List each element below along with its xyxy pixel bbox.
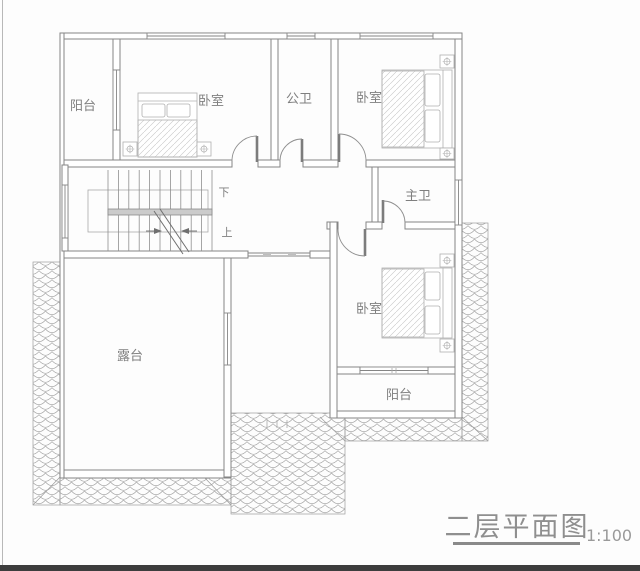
wall-mid	[303, 160, 338, 167]
door-bedroom1	[232, 136, 257, 162]
sliding-door-hall-terrace	[248, 253, 310, 256]
wall-mid	[366, 160, 462, 167]
window-top-bedroom2	[360, 33, 433, 39]
wall-balcony-divider	[113, 39, 120, 70]
window-top-publicbath	[287, 33, 315, 39]
door-bedroom3	[338, 229, 365, 256]
wall-bedroom3-bottom	[428, 367, 455, 374]
window-balcony1-bedroom1	[113, 70, 120, 130]
tile-band-left	[33, 262, 60, 505]
wall-hall-bottom	[62, 251, 248, 258]
wall-mid	[258, 160, 280, 167]
wall-mid	[60, 160, 232, 167]
wall-right	[455, 39, 462, 418]
wall-masterbath-left	[372, 167, 378, 222]
window-terrace-right	[224, 313, 231, 365]
wall-bedroom1-bath	[271, 39, 278, 160]
room-label-public-bath: 公卫	[286, 92, 312, 107]
tile-band-right	[462, 223, 488, 441]
stair-down-label: 下	[219, 186, 230, 199]
wall-bath-bedroom2	[331, 39, 338, 160]
stair-direction-arrows	[146, 228, 197, 234]
bed-bedroom2	[382, 55, 454, 159]
floor-plan-drawing: 下 上	[0, 0, 640, 571]
room-label-bedroom-top-left: 卧室	[198, 93, 224, 109]
wall-terrace-right	[224, 258, 231, 477]
wall-terrace-bottom	[60, 470, 231, 478]
drawing-title: 二层平面图	[445, 512, 590, 543]
door-masterbath	[383, 200, 405, 223]
stair-handrail	[108, 209, 212, 215]
wall-masterbath-bottom	[405, 222, 455, 229]
room-label-bedroom-bottom-right: 卧室	[356, 301, 382, 317]
room-label-bedroom-top-right: 卧室	[356, 90, 382, 106]
window-bedroom3-balcony	[360, 367, 428, 374]
title-underline	[453, 542, 580, 545]
tile-band-bottom-left	[60, 477, 231, 505]
door-bedroom2	[339, 134, 366, 162]
tile-block-center-bottom	[231, 413, 345, 514]
room-label-balcony-bottom: 阳台	[386, 388, 412, 403]
page-bottom-bar	[0, 565, 640, 571]
title-block: 二层平面图 1:100	[445, 512, 633, 545]
wall-balcony-divider	[113, 130, 120, 160]
tile-band-bottom-right	[345, 417, 462, 441]
wall-balcony-bottom	[335, 411, 462, 418]
window-top-bedroom1	[147, 33, 225, 39]
window-masterbath-right	[455, 180, 462, 225]
stair-up-label: 上	[222, 226, 233, 239]
drawing-scale: 1:100	[586, 526, 632, 545]
room-label-terrace: 露台	[117, 349, 143, 364]
floor-plan-page: 下 上	[0, 0, 640, 571]
wall-bedroom3-left	[330, 222, 337, 418]
window-stairwell-left	[62, 185, 68, 238]
wall-left	[60, 33, 64, 478]
room-label-master-bath: 主卫	[405, 189, 431, 204]
wall-bedroom3-bottom	[335, 367, 360, 374]
bed-bedroom3	[382, 254, 454, 352]
door-publicbath	[280, 139, 302, 162]
room-label-balcony-left: 阳台	[70, 99, 96, 114]
wall-masterbath-bottom	[366, 222, 382, 229]
doors	[232, 134, 405, 256]
staircase: 下 上	[88, 170, 233, 254]
